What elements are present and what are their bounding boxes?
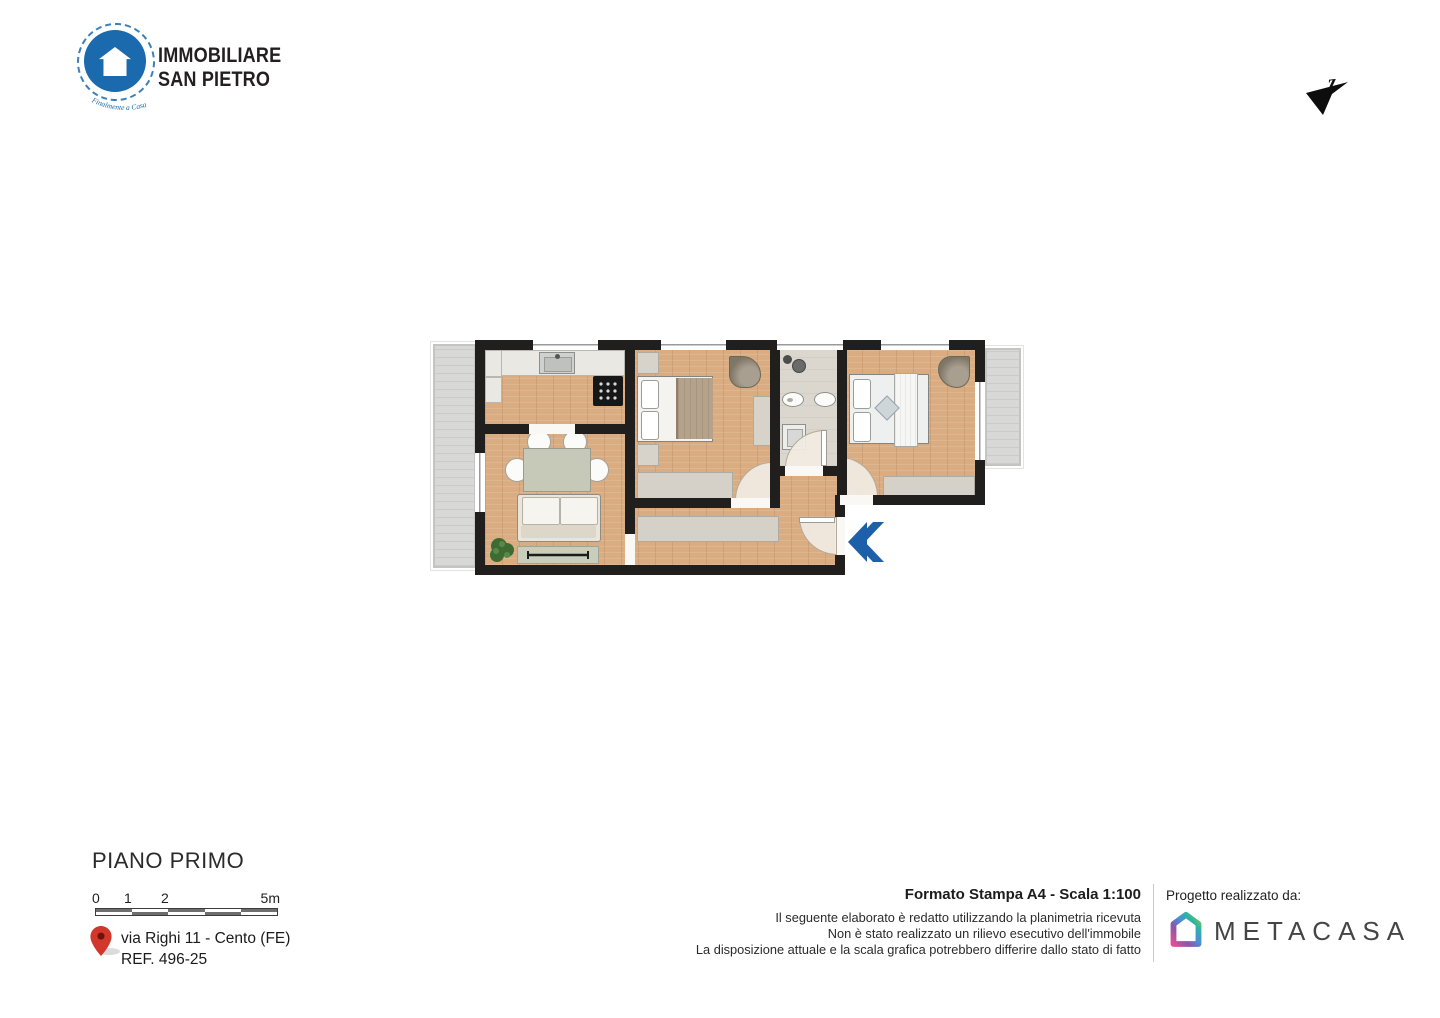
disclaimer-line: Non è stato realizzato un rilievo esecut…: [641, 926, 1141, 942]
wall-segment: [770, 340, 780, 508]
entrance-arrow-icon: [848, 520, 890, 564]
agency-logo-tagline: Finalmente a Casa: [80, 93, 170, 119]
agency-logo-line1: IMMOBILIARE: [158, 44, 281, 68]
door-opening: [731, 498, 770, 508]
credits-label: Progetto realizzato da:: [1166, 888, 1301, 903]
reference-number: REF. 496-25: [121, 949, 290, 970]
metacasa-logo-icon: [1166, 908, 1206, 950]
door-leaf-entrance: [799, 517, 835, 523]
disclaimer-line: Il seguente elaborato è redatto utilizza…: [641, 910, 1141, 926]
wardrobe-bedroom1: [637, 472, 733, 499]
floor-title: PIANO PRIMO: [92, 848, 244, 874]
wall-segment: [575, 424, 625, 434]
dining-table: [523, 448, 591, 492]
nightstand: [637, 352, 659, 374]
nightstand: [637, 444, 659, 466]
bed-double-2: [849, 374, 929, 444]
metacasa-logo-text: METACASA: [1214, 916, 1411, 947]
wall-segment: [975, 460, 985, 505]
kitchen-cabinet: [485, 377, 502, 403]
stove-cooktop: [593, 376, 623, 406]
agency-logo-name: IMMOBILIARE SAN PIETRO: [158, 44, 281, 92]
balcony-door-right: [975, 382, 985, 460]
window: [777, 340, 843, 350]
wall-segment: [873, 495, 985, 505]
entry-bench: [517, 546, 599, 564]
wall-segment: [475, 565, 845, 575]
door-opening: [529, 424, 575, 434]
scale-bar: 0 1 2 5m: [95, 890, 278, 916]
window: [661, 340, 726, 350]
scale-tick: 5m: [261, 890, 280, 906]
shower-fixture: [783, 355, 792, 364]
address-line: via Righi 11 - Cento (FE): [121, 928, 290, 949]
wall-segment: [485, 424, 529, 434]
toilet: [814, 392, 836, 407]
wall-segment: [770, 466, 785, 476]
floor-plan-sheet: IMMOBILIARE SAN PIETRO Finalmente a Casa…: [0, 0, 1440, 1018]
svg-text:Finalmente a Casa: Finalmente a Casa: [90, 95, 148, 112]
scale-tick: 0: [92, 890, 100, 906]
plant: [487, 534, 517, 564]
window-balcony-left: [475, 453, 485, 512]
sofa: [517, 494, 601, 542]
door-leaf: [821, 430, 827, 466]
window: [533, 340, 598, 350]
door-opening: [840, 495, 873, 505]
wardrobe-corridor: [637, 516, 779, 542]
scale-tick: 1: [124, 890, 132, 906]
bed-double-1: [637, 376, 713, 442]
sideboard: [753, 396, 771, 446]
scale-bar-graphic: [95, 908, 278, 916]
floor-plan: [433, 340, 1021, 575]
window: [881, 340, 949, 350]
balcony-left: [433, 344, 476, 568]
agency-logo-line2: SAN PIETRO: [158, 68, 281, 92]
wall-segment: [625, 340, 635, 534]
wall-segment: [835, 555, 845, 575]
property-address: via Righi 11 - Cento (FE) REF. 496-25: [121, 928, 290, 970]
door-opening: [625, 534, 635, 565]
kitchen-cabinet: [485, 350, 502, 377]
disclaimer-line: La disposizione attuale e la scala grafi…: [641, 942, 1141, 958]
wall-segment: [635, 498, 731, 508]
shower-head: [792, 359, 806, 373]
print-format: Formato Stampa A4 - Scala 1:100: [741, 886, 1141, 903]
scale-tick: 2: [161, 890, 169, 906]
wardrobe-bedroom2: [883, 476, 975, 496]
door-opening: [785, 466, 823, 476]
bidet: [782, 392, 804, 407]
kitchen-sink: [539, 352, 575, 374]
location-pin-icon: [90, 926, 112, 956]
disclaimer: Il seguente elaborato è redatto utilizza…: [641, 910, 1141, 958]
balcony-right: [985, 348, 1021, 466]
wall-segment: [975, 340, 985, 382]
wall-segment: [823, 466, 847, 476]
divider: [1153, 884, 1154, 962]
